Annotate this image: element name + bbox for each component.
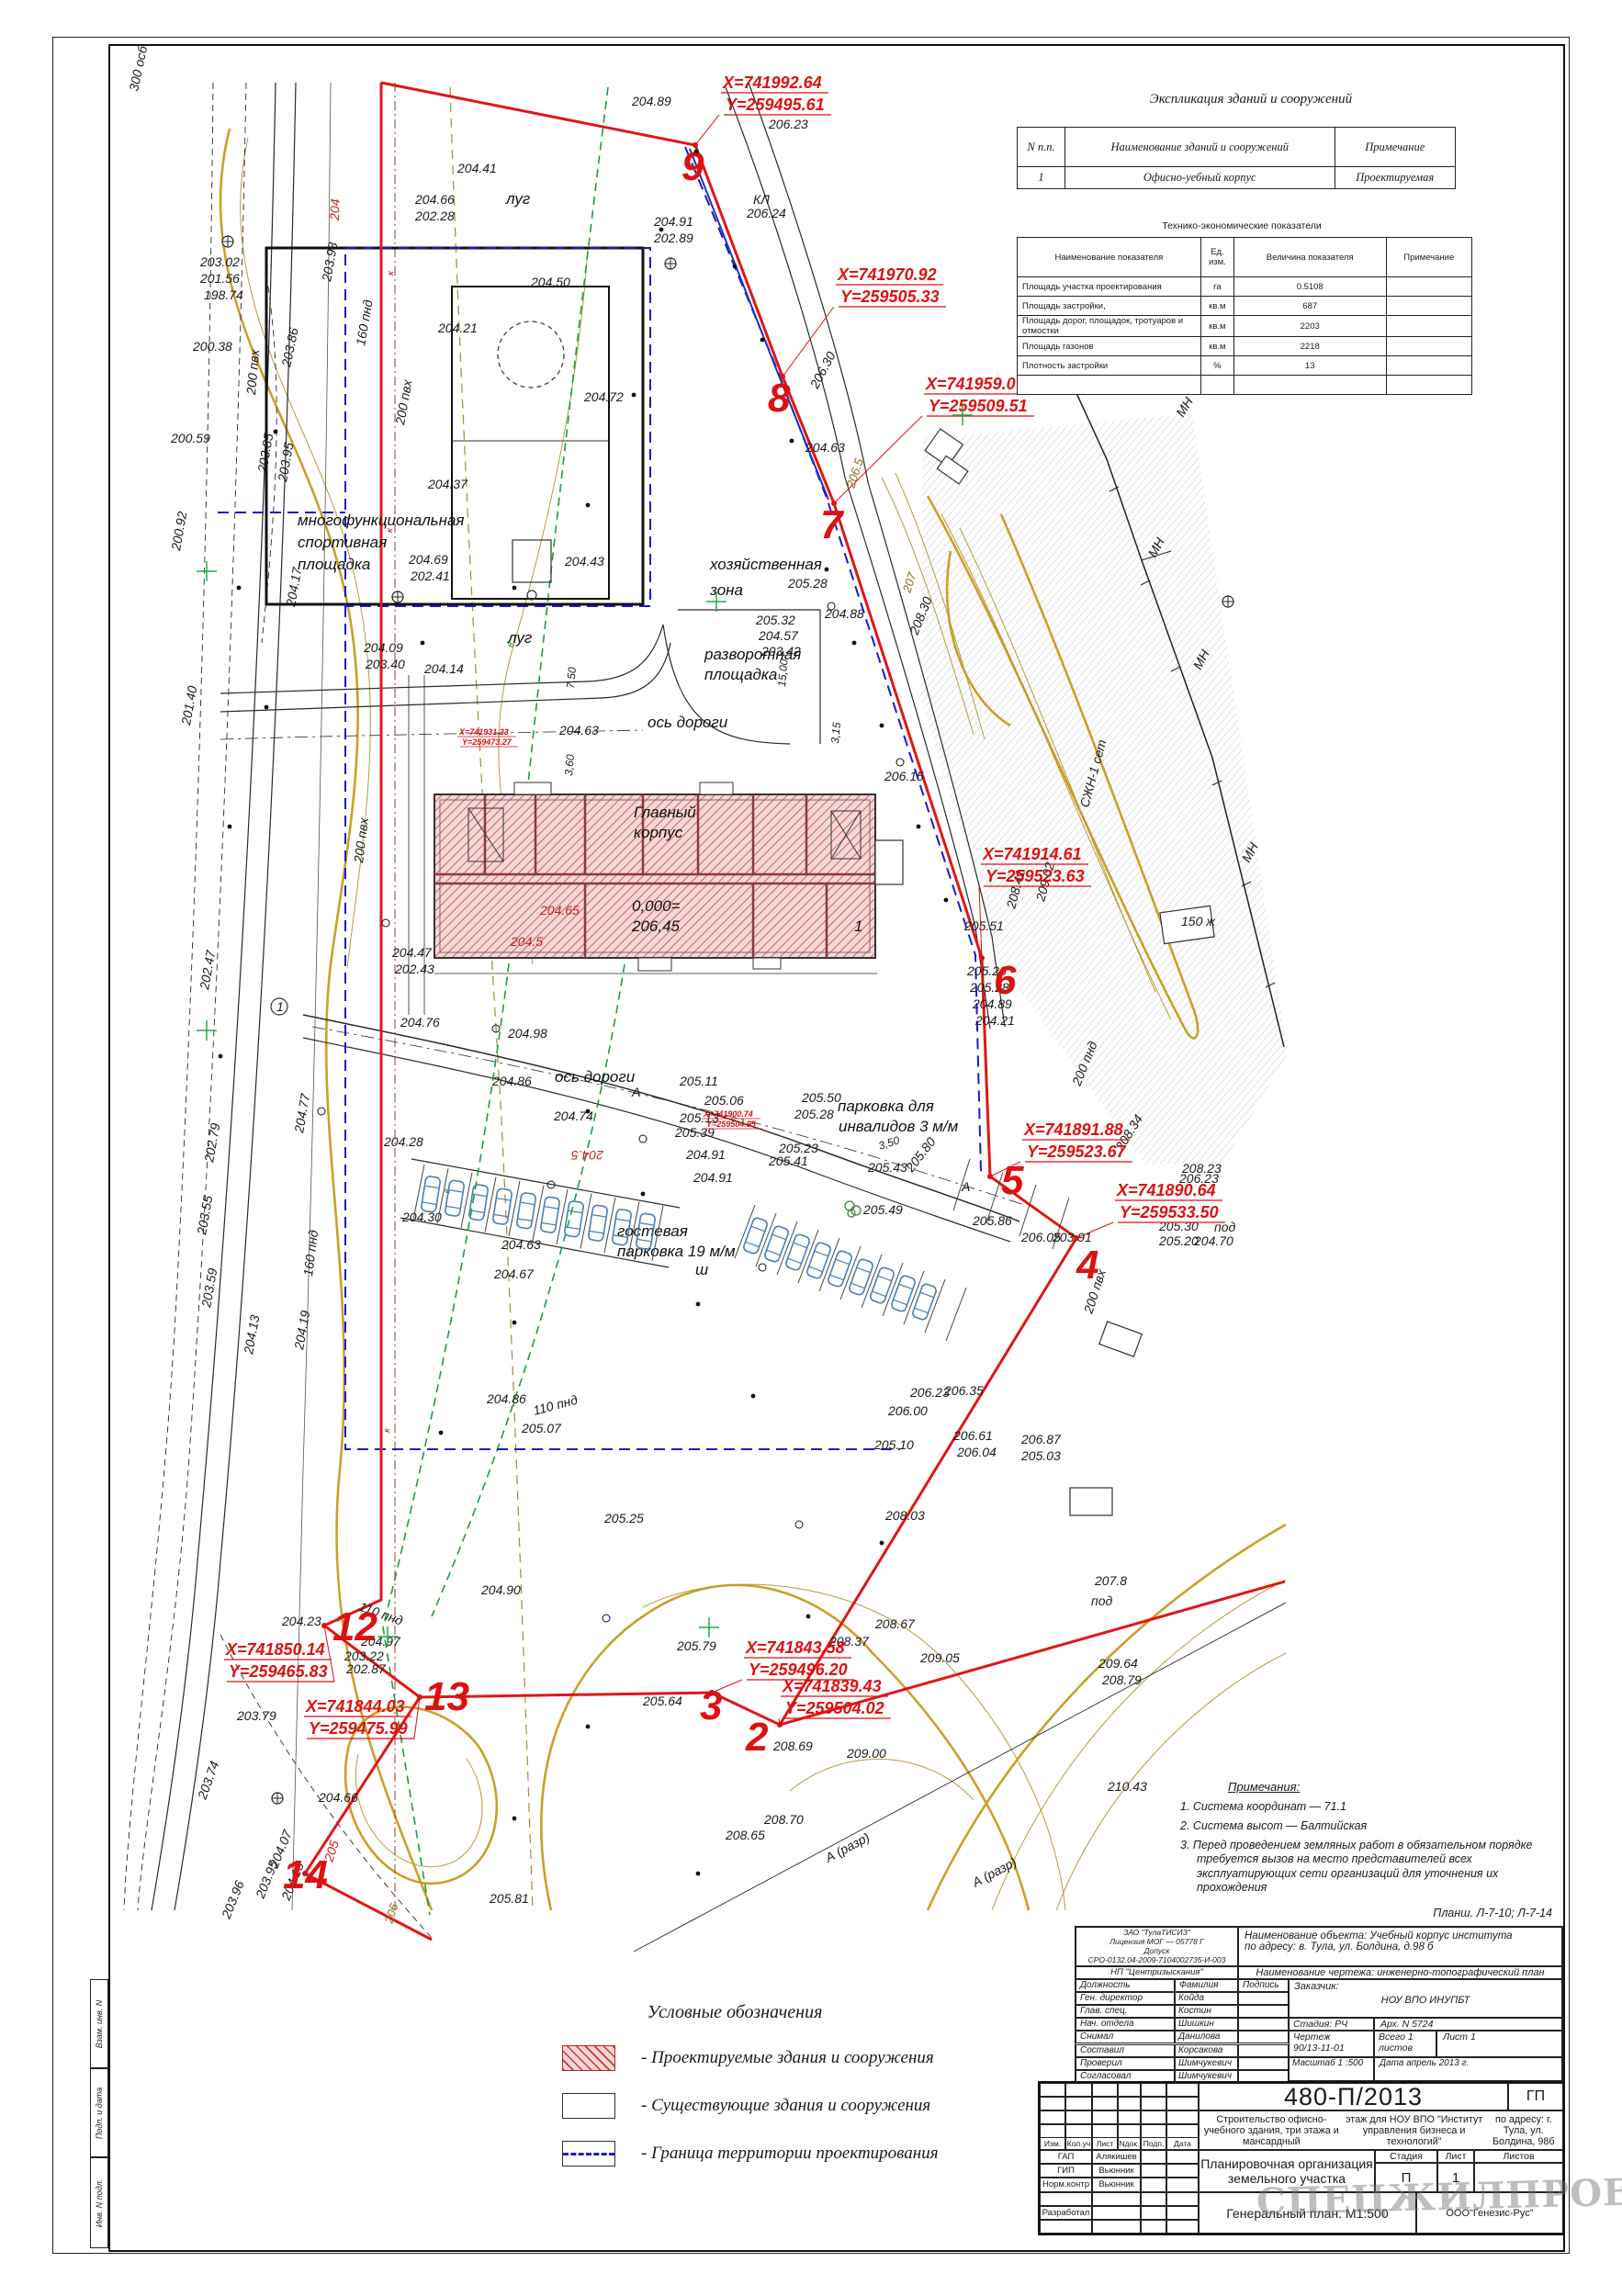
stamp-cell	[1040, 2097, 1065, 2110]
stamp-cell: Чертеж90/13-11-01	[1289, 2031, 1374, 2056]
legend-item-label: - Граница территории проектирования	[641, 2144, 939, 2164]
plansh-label: Планш. Л-7-10; Л-7-14	[1286, 1907, 1552, 1919]
stamp-cell: Вьюнник	[1092, 2164, 1141, 2178]
stamp-cell: ЗАО "ТулаТИСИЗ"Лицензия МОГ — 05778 ГДоп…	[1076, 1927, 1238, 1966]
stamp-cell: Nдок.	[1118, 2137, 1141, 2150]
stamp-cell: Данилова	[1175, 2031, 1238, 2043]
stamp-cell	[1238, 2057, 1289, 2070]
note-item: 1. Система координат — 71.1	[1180, 1800, 1535, 1815]
stamp-cell	[1166, 2220, 1199, 2234]
stamp-cell: Фамилия	[1175, 1979, 1238, 1992]
stamp-cell	[1118, 2097, 1141, 2110]
stamp-cell	[1141, 2192, 1166, 2206]
stamp-cell: 480-П/2013	[1199, 2083, 1508, 2110]
stamp-cell: Арх. N 5724	[1374, 2018, 1562, 2031]
stamp-cell	[1065, 2097, 1092, 2110]
stamp-cell	[1238, 1992, 1289, 2005]
stamp-cell: Глав. спец.	[1076, 2005, 1175, 2018]
stamp-cell	[1166, 2164, 1199, 2178]
stamp-cell	[1092, 2097, 1118, 2110]
column-header: Примечание	[1386, 238, 1472, 277]
stamp-cell	[1040, 2110, 1065, 2124]
table-row: Площадь дорог, площадок, тротуаров и отм…	[1018, 316, 1472, 337]
stamp-cell	[1141, 2164, 1166, 2178]
stamp-cell	[1092, 2110, 1118, 2124]
stamp-cell	[1092, 2192, 1141, 2206]
stamp-cell	[1092, 2083, 1118, 2097]
margin-label-box: Подп. и дата	[90, 2068, 108, 2157]
stamp-cell	[1166, 2124, 1199, 2138]
legend: Условные обозначения - Проектируемые зда…	[514, 2002, 955, 2189]
stamp-cell	[1238, 2018, 1289, 2031]
stamp-cell: Корсакова	[1175, 2044, 1238, 2057]
stamp-cell: Дата	[1166, 2137, 1199, 2150]
stamp-cell: ГАП	[1040, 2150, 1092, 2164]
explication-table: N п.п.Наименование зданий и сооруженийПр…	[1017, 127, 1456, 189]
table-row	[1018, 376, 1472, 395]
stamp-cell: Подп.	[1141, 2137, 1166, 2150]
stamp-cell	[1238, 2044, 1289, 2057]
stamp-cell: Дата апрель 2013 г.	[1374, 2057, 1562, 2081]
note-item: 3. Перед проведением земляных работ в об…	[1180, 1839, 1535, 1896]
stamp-cell	[1141, 2150, 1166, 2164]
stamp-cell: Масштаб 1 :500	[1289, 2057, 1374, 2081]
stamp-cell	[1166, 2150, 1199, 2164]
drawing-sheet: 204.41204.66202.28204.89206.23206.24КЛ20…	[0, 0, 1622, 2296]
stamp-cell: Лист 1	[1436, 2031, 1562, 2056]
table-row: Площадь газоновкв.м2218	[1018, 337, 1472, 356]
column-header: Наименование зданий и сооружений	[1064, 128, 1335, 167]
stamp-cell: Разработал	[1040, 2206, 1092, 2220]
existing-swatch-icon	[562, 2093, 615, 2119]
stamp-cell: Вьюнник	[1092, 2178, 1141, 2191]
stamp-cell	[1118, 2083, 1141, 2097]
stamp-cell	[1238, 2005, 1289, 2018]
stamp-cell: Алякишев	[1092, 2150, 1141, 2164]
stamp-cell	[1118, 2124, 1141, 2138]
stamp-cell: Изм.	[1040, 2137, 1065, 2150]
stamp-cell	[1166, 2083, 1199, 2097]
stamp-cell	[1166, 2178, 1199, 2191]
stamp-cell: Строительство офисно-учебного здания, тр…	[1199, 2110, 1563, 2150]
stamp-cell	[1141, 2220, 1166, 2234]
stamp-cell	[1118, 2110, 1141, 2124]
stamp-cell: Заказчик:НОУ ВПО ИНУПБТ	[1289, 1979, 1562, 2018]
note-item: 2. Система высот — Балтийская	[1180, 1819, 1535, 1834]
column-header: N п.п.	[1018, 128, 1065, 167]
column-header: Величина показателя	[1233, 238, 1386, 277]
table-row: Плотность застройки%13	[1018, 356, 1472, 376]
stamp-cell: Составил	[1076, 2044, 1175, 2057]
survey-title-block: ЗАО "ТулаТИСИЗ"Лицензия МОГ — 05778 ГДоп…	[1075, 1926, 1563, 2083]
stamp-cell	[1166, 2110, 1199, 2124]
notes-block: Примечания: 1. Система координат — 71.12…	[1180, 1780, 1535, 1900]
stamp-cell	[1166, 2206, 1199, 2220]
tep-table: Наименование показателяЕд. изм.Величина …	[1017, 237, 1472, 395]
stamp-cell	[1040, 2083, 1065, 2097]
table-row: 1Офисно-уебный корпусПроектируемая	[1018, 167, 1456, 189]
stamp-cell: Всего 1листов	[1374, 2031, 1436, 2056]
stamp-cell	[1238, 2031, 1289, 2043]
stamp-cell: Шимчукевич	[1175, 2057, 1238, 2070]
stamp-cell: Подпись	[1238, 1979, 1289, 1992]
stamp-cell: ГИП	[1040, 2164, 1092, 2178]
stamp-cell: Койда	[1175, 1992, 1238, 2005]
boundary-swatch-icon	[562, 2141, 615, 2167]
stamp-cell	[1092, 2220, 1141, 2234]
table-row: Площадь участка проектированияга0.5108	[1018, 277, 1472, 297]
tep-title: Технико-экономические показатели	[1058, 220, 1425, 231]
stamp-cell: Ген. директор	[1076, 1992, 1175, 2005]
stamp-cell: Наименование чертежа: инженерно-топограф…	[1238, 1966, 1562, 1979]
stamp-cell	[1141, 2206, 1166, 2220]
stamp-cell	[1092, 2124, 1118, 2138]
stamp-cell	[1065, 2124, 1092, 2138]
stamp-cell	[1092, 2206, 1141, 2220]
stamp-cell	[1040, 2220, 1092, 2234]
stamp-cell: ГП	[1508, 2083, 1563, 2110]
stamp-cell: НП "Центризыскания"	[1076, 1966, 1238, 1979]
legend-item: - Существующие здания и сооружения	[514, 2093, 955, 2119]
stamp-cell	[1040, 2124, 1065, 2138]
stamp-cell: Стадия: РЧ	[1289, 2018, 1374, 2031]
stamp-cell: Лист	[1092, 2137, 1118, 2150]
stamp-cell	[1065, 2110, 1092, 2124]
legend-item-label: - Существующие здания и сооружения	[641, 2096, 930, 2116]
stamp-cell: Костин	[1175, 2005, 1238, 2018]
stamp-cell	[1141, 2110, 1166, 2124]
stamp-cell: Наименование объекта: Учебный корпус инс…	[1238, 1927, 1562, 1966]
stamp-cell: Проверил	[1076, 2057, 1175, 2070]
column-header: Наименование показателя	[1018, 238, 1201, 277]
stamp-cell	[1065, 2083, 1092, 2097]
margin-label-box: Взам. инв. N	[90, 1979, 108, 2068]
stamp-cell: Должность	[1076, 1979, 1175, 1992]
stamp-cell	[1141, 2124, 1166, 2138]
stamp-cell	[1040, 2192, 1092, 2206]
stamp-cell: Шишкин	[1175, 2018, 1238, 2031]
stamp-cell: Лист	[1437, 2150, 1474, 2163]
stamp-cell: Кол.уч	[1065, 2137, 1092, 2150]
stamp-cell: Листов	[1474, 2150, 1563, 2163]
legend-item-label: - Проектируемые здания и сооружения	[641, 2048, 934, 2068]
notes-title: Примечания:	[1228, 1780, 1535, 1795]
legend-title: Условные обозначения	[514, 2002, 955, 2023]
stamp-cell	[1166, 2097, 1199, 2110]
margin-label-box: Инв. N подл.	[90, 2157, 108, 2248]
stamp-cell	[1141, 2097, 1166, 2110]
stamp-cell	[1141, 2083, 1166, 2097]
legend-item: - Проектируемые здания и сооружения	[514, 2045, 955, 2071]
stamp-cell	[1166, 2192, 1199, 2206]
stamp-cell	[1141, 2178, 1166, 2191]
stamp-cell: Норм.контр	[1040, 2178, 1092, 2191]
column-header: Примечание	[1335, 128, 1456, 167]
stamp-cell: Нач. отдела	[1076, 2018, 1175, 2031]
stamp-cell: Стадия	[1375, 2150, 1437, 2163]
table-row: Площадь застройки,кв.м687	[1018, 297, 1472, 316]
explication-title: Экспликация зданий и сооружений	[1067, 92, 1435, 107]
stamp-cell: Снимал	[1076, 2031, 1175, 2043]
column-header: Ед. изм.	[1200, 238, 1233, 277]
legend-item: - Граница территории проектирования	[514, 2141, 955, 2167]
projected-swatch-icon	[562, 2045, 615, 2071]
